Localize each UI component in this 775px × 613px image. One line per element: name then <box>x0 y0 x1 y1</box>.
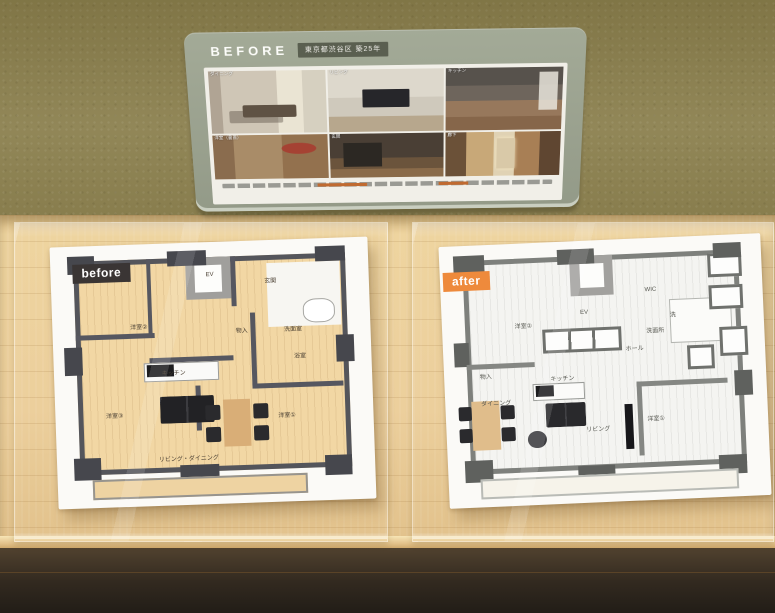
balcony <box>481 469 739 500</box>
before-photo-panel: BEFORE 東京都渋谷区 築25年 ダイニング リビング キッチン 洋室（書斎… <box>183 27 587 212</box>
dining-chair <box>502 427 516 442</box>
lounge-chair <box>528 430 547 448</box>
photo-kitchen: キッチン <box>446 67 564 131</box>
dining-table <box>472 400 502 450</box>
wall-pillar <box>557 248 594 264</box>
caption-text-blurred <box>222 179 552 188</box>
elevator-cab <box>194 264 222 292</box>
wall-pillar <box>713 242 741 258</box>
room-label: 物入 <box>480 371 492 381</box>
floorplan-before: 洋室②EV玄関物入洗面室浴室洋室①洋室③キッチンリビング・ダイニング <box>58 245 368 501</box>
after-label-badge: after <box>443 271 490 292</box>
room-label: 物入 <box>236 325 248 334</box>
photo-label: リビング <box>329 71 348 77</box>
photo-dining: ダイニング <box>208 70 327 134</box>
open-shelf <box>719 325 748 356</box>
cooktop <box>535 386 554 398</box>
wall-pillar <box>64 348 83 376</box>
photo-label: 廊下 <box>448 133 457 138</box>
photo-entrance: 玄関 <box>329 133 444 178</box>
dining-table <box>223 399 252 447</box>
dining-chair <box>254 425 270 440</box>
room-label: リビング <box>586 423 610 433</box>
photo-living: リビング <box>327 68 444 132</box>
before-label-badge: before <box>72 263 130 284</box>
panel-header: BEFORE 東京都渋谷区 築25年 <box>210 42 388 59</box>
photo-label: キッチン <box>448 69 467 75</box>
photo-hallway: 廊下 <box>446 131 561 176</box>
photo-label: 洋室（書斎） <box>214 136 241 141</box>
sofa <box>545 401 586 427</box>
room-label: 洗面室 <box>284 324 302 334</box>
room-label: 洋室① <box>278 410 296 420</box>
floorplan-after: 洋室②EVWIC洗洗面所ホール物入キッチンダイニングリビング洋室① <box>447 241 763 500</box>
wall-pillar <box>314 245 345 261</box>
room-label: EV <box>580 310 588 316</box>
room-label: 洋室① <box>647 413 665 423</box>
room-label: 洗面所 <box>646 325 664 335</box>
room-label: キッチン <box>550 373 574 383</box>
wall-pillar <box>325 454 353 475</box>
open-shelf <box>687 344 716 370</box>
photo-label: 玄関 <box>331 135 340 140</box>
dining-chair <box>206 427 222 442</box>
dining-chair <box>253 403 269 418</box>
elevator-cab <box>579 263 605 289</box>
room-label: 浴室 <box>294 350 306 359</box>
room-label: 洋室② <box>514 320 532 330</box>
model-before: 洋室②EV玄関物入洗面室浴室洋室①洋室③キッチンリビング・ダイニング befor… <box>50 237 377 510</box>
renovation-display-photo: BEFORE 東京都渋谷区 築25年 ダイニング リビング キッチン 洋室（書斎… <box>0 0 775 613</box>
dining-chair <box>458 406 472 421</box>
photo-grid: ダイニング リビング キッチン 洋室（書斎） 玄関 廊下 <box>208 67 564 180</box>
room-label: EV <box>205 272 213 278</box>
room-label: ダイニング <box>481 398 511 408</box>
room-label: 洋室② <box>130 322 148 332</box>
wall-pillar <box>734 369 753 394</box>
room-label: 洋室③ <box>106 411 124 421</box>
panel-title: BEFORE <box>210 43 288 59</box>
room-label: 玄関 <box>264 275 276 284</box>
panel-location-badge: 東京都渋谷区 築25年 <box>298 42 389 58</box>
photo-study: 洋室（書斎） <box>212 134 328 179</box>
wall-pillar <box>336 334 355 362</box>
wall-pillar <box>74 458 102 481</box>
room-label: WIC <box>645 287 657 294</box>
model-after: 洋室②EVWIC洗洗面所ホール物入キッチンダイニングリビング洋室① after <box>438 233 771 509</box>
balcony <box>93 473 308 500</box>
open-shelf-band <box>542 326 623 354</box>
open-shelf <box>708 284 743 310</box>
photo-label: ダイニング <box>210 72 233 78</box>
room-label: 洗 <box>670 309 676 318</box>
room-label: キッチン <box>162 367 186 377</box>
photo-board: ダイニング リビング キッチン 洋室（書斎） 玄関 廊下 <box>204 63 568 205</box>
dining-chair <box>205 405 221 420</box>
wall-pillar <box>166 250 206 266</box>
dining-chair <box>459 428 473 443</box>
bathtub <box>302 297 335 322</box>
room-label: ホール <box>625 343 643 353</box>
dark-wood-floor <box>0 548 775 613</box>
